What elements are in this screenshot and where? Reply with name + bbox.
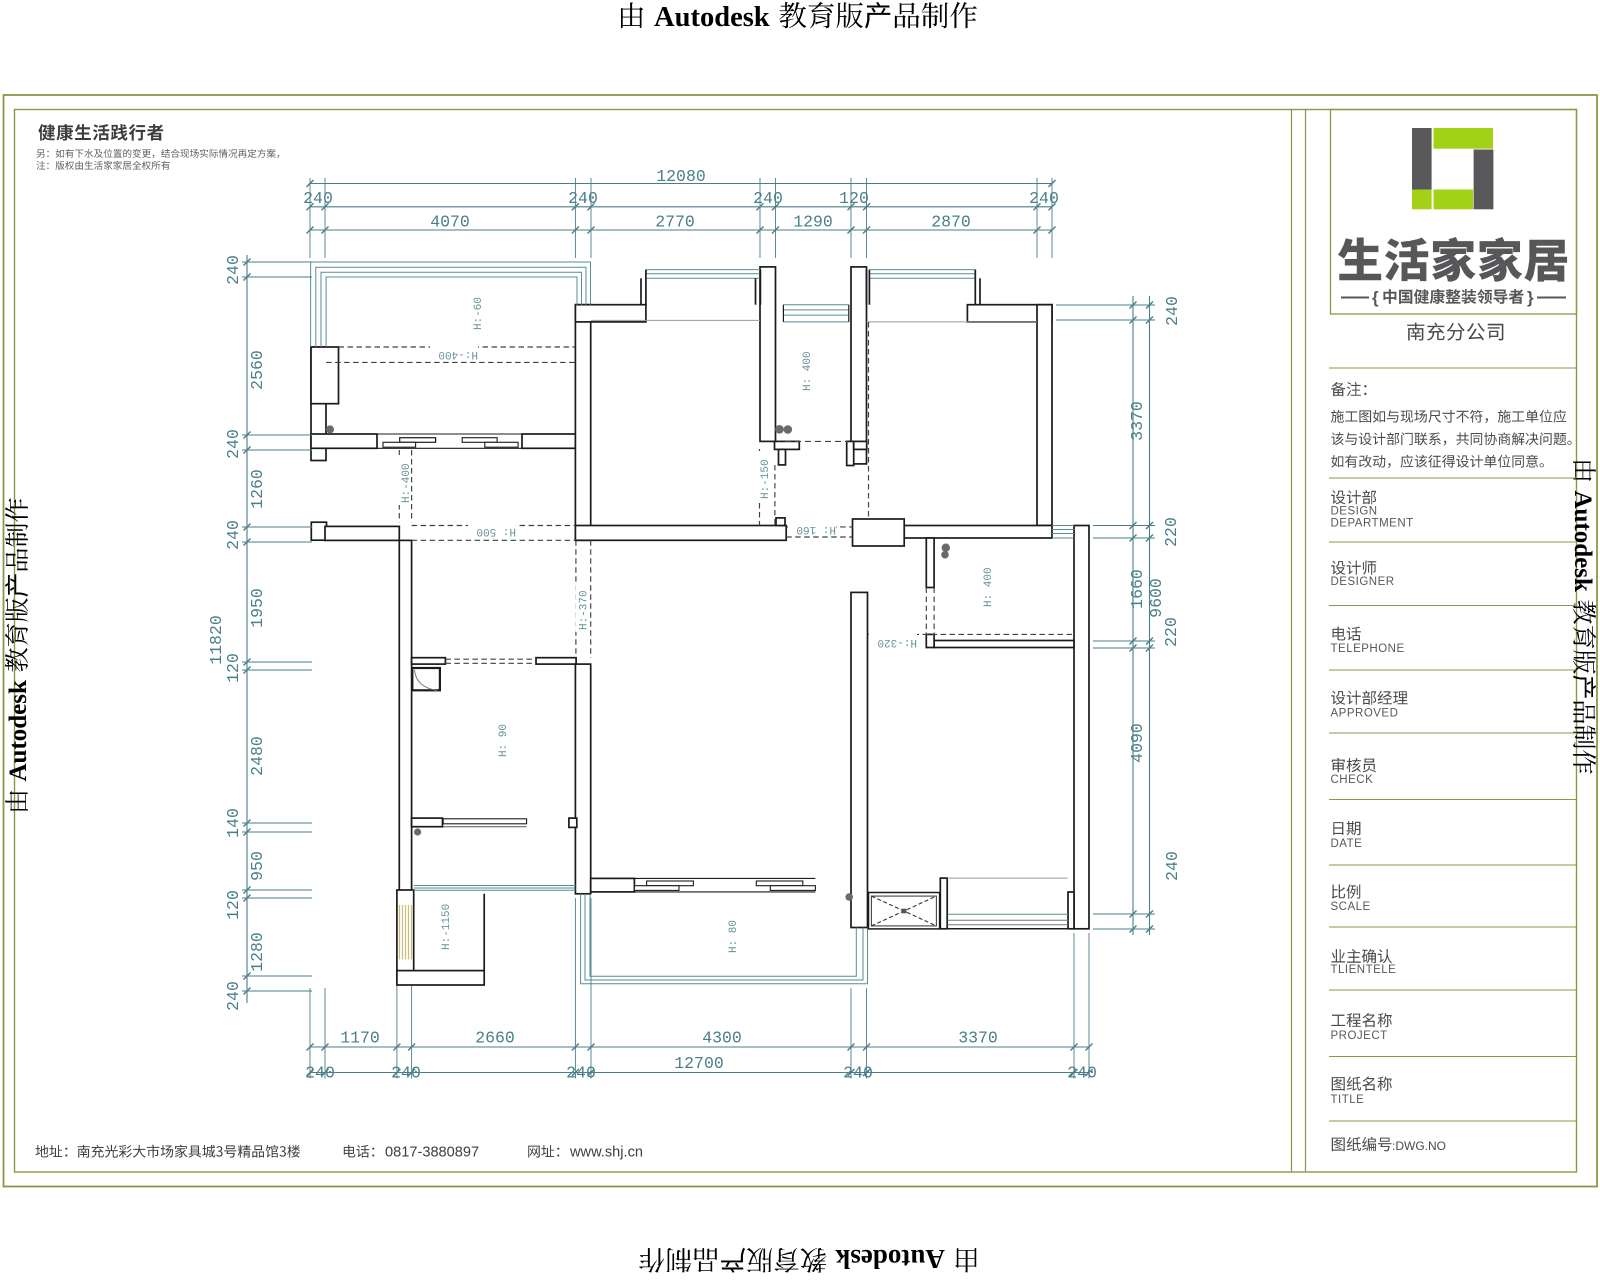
svg-text:H:-320: H:-320 xyxy=(877,636,917,648)
svg-text:120: 120 xyxy=(224,890,243,920)
svg-text:220: 220 xyxy=(1162,517,1181,547)
svg-text:1280: 1280 xyxy=(248,932,267,972)
svg-text:H:-1150: H:-1150 xyxy=(441,904,453,950)
svg-text:2870: 2870 xyxy=(931,213,971,232)
svg-text:1660: 1660 xyxy=(1128,569,1147,609)
svg-text:120: 120 xyxy=(224,653,243,683)
svg-text:H: 400: H: 400 xyxy=(983,567,995,607)
svg-text:H: 90: H: 90 xyxy=(498,724,510,757)
svg-text:4090: 4090 xyxy=(1128,723,1147,763)
svg-text:240: 240 xyxy=(224,981,243,1011)
svg-text:240: 240 xyxy=(1029,189,1059,208)
svg-text:240: 240 xyxy=(753,189,783,208)
svg-text:1260: 1260 xyxy=(248,469,267,509)
svg-text:www.shj.cn: www.shj.cn xyxy=(569,1145,643,1161)
svg-text:H:-370: H:-370 xyxy=(579,590,591,630)
svg-text:120: 120 xyxy=(839,189,869,208)
svg-text:CHECK: CHECK xyxy=(1331,774,1374,786)
svg-text:240: 240 xyxy=(843,1064,873,1083)
svg-text:H:-60: H:-60 xyxy=(473,297,485,330)
svg-text:3370: 3370 xyxy=(958,1029,998,1048)
svg-text:2660: 2660 xyxy=(475,1029,515,1048)
svg-text:240: 240 xyxy=(224,520,243,550)
svg-text:2560: 2560 xyxy=(248,350,267,390)
svg-text:DESIGNER: DESIGNER xyxy=(1331,576,1395,588)
svg-text:H: 500: H: 500 xyxy=(476,525,516,537)
svg-text:TELEPHONE: TELEPHONE xyxy=(1331,643,1405,655)
svg-text:12080: 12080 xyxy=(656,167,706,186)
svg-text:240: 240 xyxy=(305,1064,335,1083)
svg-text::DWG.NO: :DWG.NO xyxy=(1392,1139,1446,1153)
svg-text:950: 950 xyxy=(248,851,267,881)
svg-text:4070: 4070 xyxy=(430,213,470,232)
svg-text:2770: 2770 xyxy=(655,213,695,232)
svg-text:PROJECT: PROJECT xyxy=(1331,1030,1388,1042)
svg-text:H: 80: H: 80 xyxy=(728,920,740,953)
svg-text:SCALE: SCALE xyxy=(1331,901,1371,913)
svg-text:TLIENTELE: TLIENTELE xyxy=(1331,964,1397,976)
svg-text:H:-400: H:-400 xyxy=(401,463,413,503)
svg-text:240: 240 xyxy=(1163,296,1182,326)
svg-text:1290: 1290 xyxy=(793,213,833,232)
svg-text:}: } xyxy=(1527,288,1534,307)
svg-text:3370: 3370 xyxy=(1128,401,1147,441)
svg-text:DEPARTMENT: DEPARTMENT xyxy=(1331,518,1414,530)
svg-text:240: 240 xyxy=(1163,851,1182,881)
svg-text:H:-150: H:-150 xyxy=(760,459,772,499)
svg-text:1170: 1170 xyxy=(340,1029,380,1048)
svg-text:240: 240 xyxy=(224,429,243,459)
svg-text:4300: 4300 xyxy=(702,1029,742,1048)
svg-text:240: 240 xyxy=(566,1064,596,1083)
svg-text:12700: 12700 xyxy=(674,1054,724,1073)
svg-text:240: 240 xyxy=(391,1064,421,1083)
svg-text:240: 240 xyxy=(224,255,243,285)
svg-text:DATE: DATE xyxy=(1331,838,1363,850)
svg-text:2480: 2480 xyxy=(248,736,267,776)
svg-text:H: 400: H: 400 xyxy=(802,351,814,391)
svg-text:140: 140 xyxy=(224,808,243,838)
svg-text:H:-400: H:-400 xyxy=(438,348,478,360)
svg-text:240: 240 xyxy=(1067,1064,1097,1083)
svg-text:DESIGN: DESIGN xyxy=(1331,506,1378,518)
svg-text:{: { xyxy=(1372,288,1379,307)
svg-text:240: 240 xyxy=(303,189,333,208)
svg-text:220: 220 xyxy=(1162,617,1181,647)
svg-text:240: 240 xyxy=(568,189,598,208)
svg-text:APPROVED: APPROVED xyxy=(1331,708,1399,720)
svg-text:9600: 9600 xyxy=(1147,578,1166,618)
svg-text:1950: 1950 xyxy=(248,588,267,628)
svg-text:TITLE: TITLE xyxy=(1331,1094,1365,1106)
svg-text:0817-3880897: 0817-3880897 xyxy=(385,1145,479,1161)
svg-text:H: 160: H: 160 xyxy=(796,523,836,535)
